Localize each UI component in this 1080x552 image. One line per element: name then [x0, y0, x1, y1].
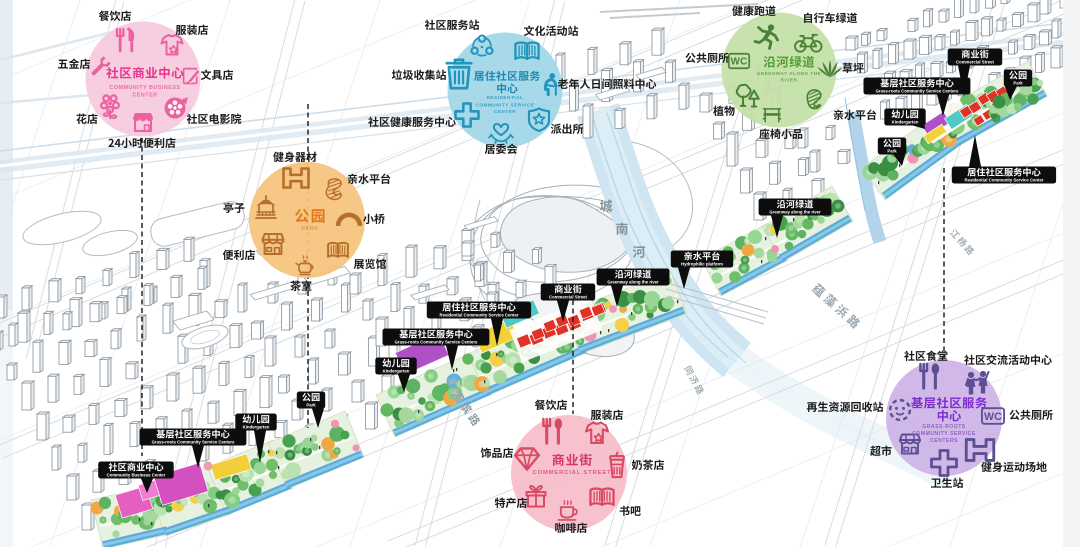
svg-text:CENTER: CENTER	[494, 109, 516, 114]
svg-text:Greenway along the river: Greenway along the river	[769, 209, 821, 214]
svg-text:RIVER: RIVER	[781, 78, 798, 83]
svg-text:GRASS-ROOTS: GRASS-ROOTS	[922, 424, 966, 430]
svg-text:RESIDENTIAL: RESIDENTIAL	[487, 95, 524, 100]
svg-text:Community Business Center: Community Business Center	[107, 472, 166, 477]
svg-text:Commercial Street: Commercial Street	[549, 294, 588, 299]
svg-text:Residential Community Service: Residential Community Service Center	[964, 177, 1043, 182]
svg-text:WC: WC	[731, 57, 748, 68]
svg-text:COMMUNITY SERVICE: COMMUNITY SERVICE	[475, 103, 534, 108]
svg-text:Grass-roots Community Service: Grass-roots Community Service Centers	[876, 88, 959, 93]
svg-text:Commercial Street: Commercial Street	[956, 59, 995, 64]
svg-text:CENTER: CENTER	[132, 93, 157, 99]
svg-text:Greenway along the river: Greenway along the river	[607, 279, 659, 284]
svg-text:Park: Park	[1013, 80, 1023, 85]
svg-text:Grass-roots Community Service: Grass-roots Community Service Centers	[152, 439, 235, 444]
svg-text:Park: Park	[306, 402, 316, 407]
svg-text:COMMUNITY BUSINESS: COMMUNITY BUSINESS	[109, 85, 180, 91]
svg-text:PARK: PARK	[301, 226, 318, 232]
svg-text:Grass-roots Community Service: Grass-roots Community Service Centers	[395, 339, 478, 344]
svg-text:COMMUNITY SERVICE: COMMUNITY SERVICE	[912, 431, 976, 437]
svg-text:Kindergarten: Kindergarten	[892, 119, 919, 124]
svg-text:WC: WC	[984, 411, 1002, 423]
svg-text:Kindergarten: Kindergarten	[383, 368, 410, 373]
svg-text:Kindergarten: Kindergarten	[243, 424, 270, 429]
svg-text:COMMERCIAL STREET: COMMERCIAL STREET	[533, 470, 612, 476]
svg-text:GREENWAY ALONG THE: GREENWAY ALONG THE	[757, 71, 822, 76]
svg-text:Residential Community Service: Residential Community Service Center	[439, 312, 518, 317]
svg-text:CENTERS: CENTERS	[930, 438, 958, 444]
svg-text:Hydrophilic platform: Hydrophilic platform	[681, 261, 723, 266]
svg-text:Park: Park	[887, 148, 897, 153]
